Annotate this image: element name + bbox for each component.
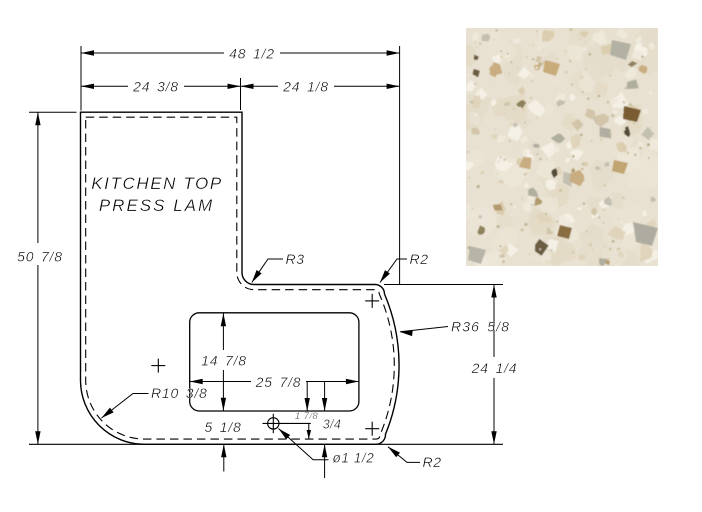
svg-text:R2: R2 <box>410 251 429 267</box>
svg-text:R3: R3 <box>286 251 305 267</box>
svg-text:PRESS LAM: PRESS LAM <box>99 196 214 215</box>
svg-text:3/4: 3/4 <box>323 418 342 432</box>
svg-text:50 7/8: 50 7/8 <box>17 249 63 265</box>
svg-text:25 7/8: 25 7/8 <box>255 374 302 390</box>
svg-text:R10 3/8: R10 3/8 <box>151 385 208 401</box>
svg-text:ø1 1/2: ø1 1/2 <box>333 451 375 466</box>
svg-text:5 1/8: 5 1/8 <box>204 419 241 435</box>
svg-text:1 7/8: 1 7/8 <box>295 411 318 422</box>
svg-text:R2: R2 <box>423 454 442 470</box>
svg-text:KITCHEN TOP: KITCHEN TOP <box>91 174 223 193</box>
svg-text:24 1/4: 24 1/4 <box>471 360 518 376</box>
svg-text:24 1/8: 24 1/8 <box>282 79 329 95</box>
svg-text:48 1/2: 48 1/2 <box>229 46 275 62</box>
svg-text:24 3/8: 24 3/8 <box>132 79 179 95</box>
svg-text:R36 5/8: R36 5/8 <box>451 319 510 335</box>
svg-text:14 7/8: 14 7/8 <box>201 353 247 369</box>
